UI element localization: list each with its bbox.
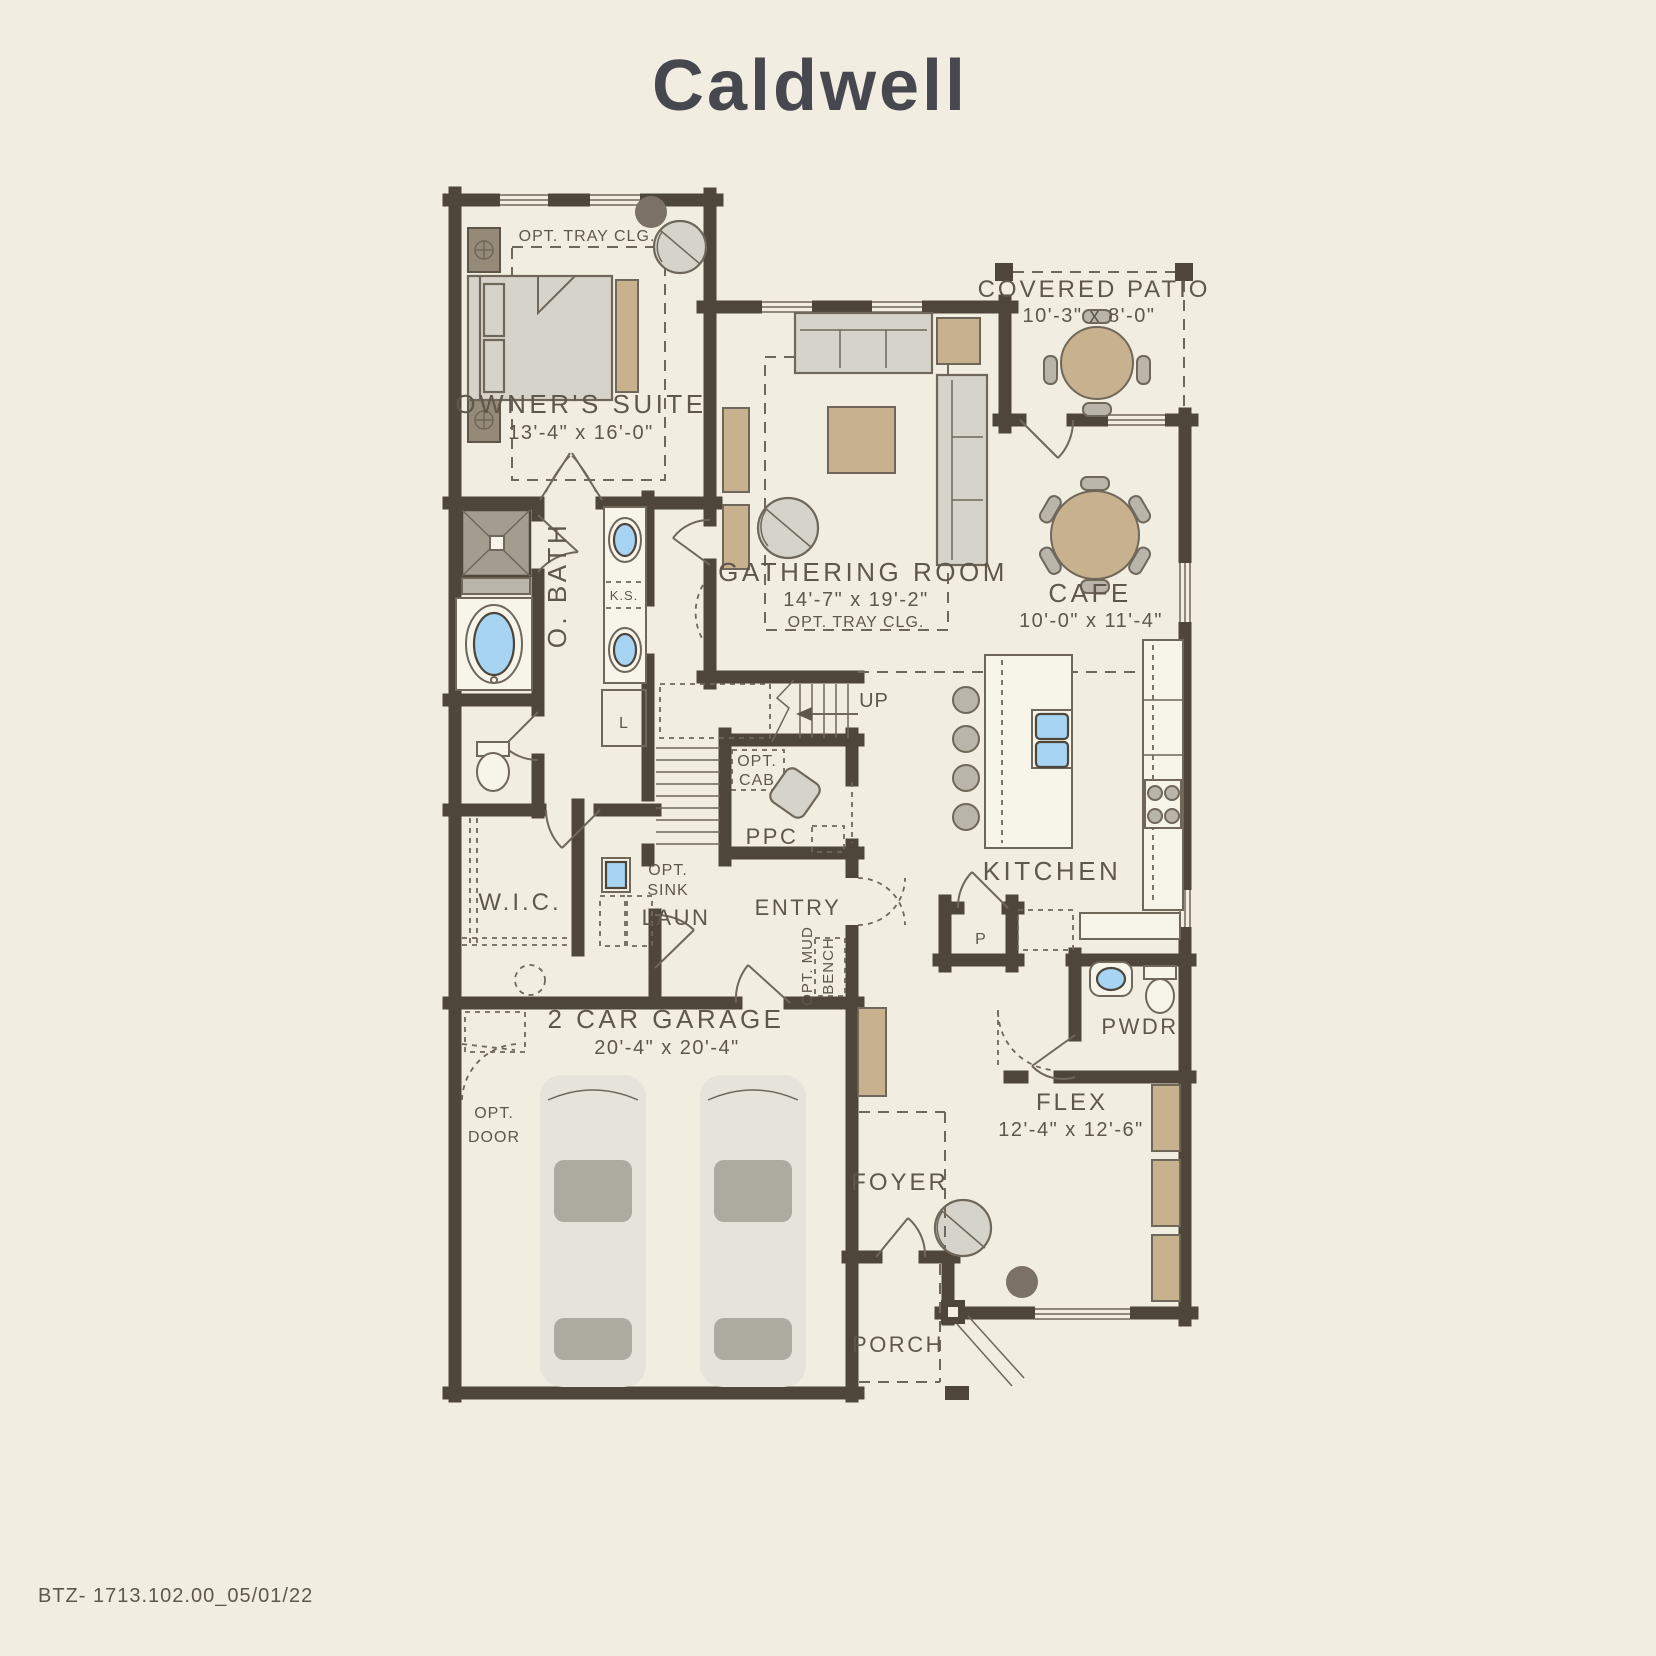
bookshelf: [1152, 1085, 1180, 1151]
bathtub: [456, 598, 532, 690]
bed: [468, 276, 612, 400]
annotation-up: UP: [859, 690, 889, 712]
perimeter-counter: [1143, 640, 1183, 910]
annotation-opt-tray-suite: OPT. TRAY CLG.: [519, 228, 656, 245]
room-label-flex: FLEX: [1036, 1089, 1108, 1116]
room-label-owners-bath: O. BATH: [542, 522, 572, 649]
shower: [462, 510, 530, 594]
annotation-linen: L: [619, 715, 629, 732]
annotation-kitchen-sink: K.S.: [610, 588, 639, 603]
bench: [616, 280, 638, 392]
annotation-opt-door-2: DOOR: [468, 1129, 520, 1146]
window: [1177, 563, 1193, 622]
annotation-opt-sink-2: SINK: [647, 882, 688, 899]
powder-sink: [1090, 962, 1132, 996]
powder-toilet: [1144, 966, 1176, 1013]
counter: [1080, 913, 1180, 939]
hall-bench: [858, 1008, 886, 1096]
room-label-garage: 2 CAR GARAGE: [547, 1004, 784, 1034]
annotation-opt-cab-2: CAB: [739, 772, 775, 789]
page-title: Caldwell: [652, 46, 968, 126]
side-table: [937, 318, 980, 364]
room-label-cafe: CAFE: [1048, 578, 1131, 608]
kitchen-island: [985, 655, 1072, 848]
floor-plan: Caldwell: [0, 0, 1656, 1656]
annotation-opt-tray-gathering: OPT. TRAY CLG.: [788, 614, 925, 631]
flex-chair: [935, 1200, 991, 1256]
annotation-opt-door-1: OPT.: [474, 1105, 514, 1122]
window: [1108, 412, 1165, 428]
annotation-opt-cab-1: OPT.: [737, 753, 777, 770]
side-table: [635, 196, 667, 228]
coffee-table: [828, 407, 895, 473]
cooktop: [1145, 780, 1181, 828]
annotation-pantry: P: [975, 931, 987, 948]
annotation-opt-sink-1: OPT.: [648, 862, 688, 879]
window: [500, 192, 548, 208]
armchair: [654, 221, 706, 273]
window: [590, 192, 640, 208]
room-label-owners-suite: OWNER'S SUITE: [455, 389, 706, 419]
room-dims-gathering: 14'-7" x 19'-2": [783, 589, 929, 611]
room-dims-cafe: 10'-0" x 11'-4": [1019, 610, 1163, 632]
room-label-gathering: GATHERING ROOM: [718, 557, 1008, 587]
room-dims-flex: 12'-4" x 12'-6": [998, 1119, 1144, 1141]
porch-post: [945, 1386, 969, 1400]
porch-post: [941, 1300, 965, 1324]
room-label-foyer: FOYER: [851, 1169, 949, 1196]
sofa: [795, 313, 932, 373]
bookshelf: [1152, 1160, 1180, 1226]
page-background: [0, 0, 1656, 1656]
sectional: [937, 375, 987, 565]
room-label-porch: PORCH: [852, 1332, 944, 1357]
bookshelf: [1152, 1235, 1180, 1301]
room-label-wic: W.I.C.: [478, 889, 561, 916]
room-label-ppc: PPC: [746, 824, 799, 849]
drawing-code: BTZ- 1713.102.00_05/01/22: [38, 1585, 313, 1607]
room-dims-covered-patio: 10'-3" x 8'-0": [1023, 305, 1156, 327]
room-label-covered-patio: COVERED PATIO: [978, 276, 1211, 303]
car: [540, 1075, 646, 1387]
toilet: [477, 742, 509, 791]
room-dims-garage: 20'-4" x 20'-4": [594, 1037, 740, 1059]
nightstand: [468, 228, 500, 272]
window: [1035, 1306, 1130, 1322]
console-table: [723, 408, 749, 492]
car: [700, 1075, 806, 1387]
annotation-opt-mud-1: OPT. MUD: [799, 926, 816, 1006]
side-table: [1006, 1266, 1038, 1298]
swivel-chair: [758, 498, 818, 558]
annotation-opt-mud-2: BENCH: [820, 937, 837, 995]
room-label-kitchen: KITCHEN: [983, 856, 1122, 886]
room-label-laundry: LAUN: [642, 905, 711, 930]
room-label-entry: ENTRY: [755, 895, 842, 920]
room-dims-owners-suite: 13'-4" x 16'-0": [508, 422, 654, 444]
room-label-powder: PWDR: [1101, 1014, 1178, 1039]
